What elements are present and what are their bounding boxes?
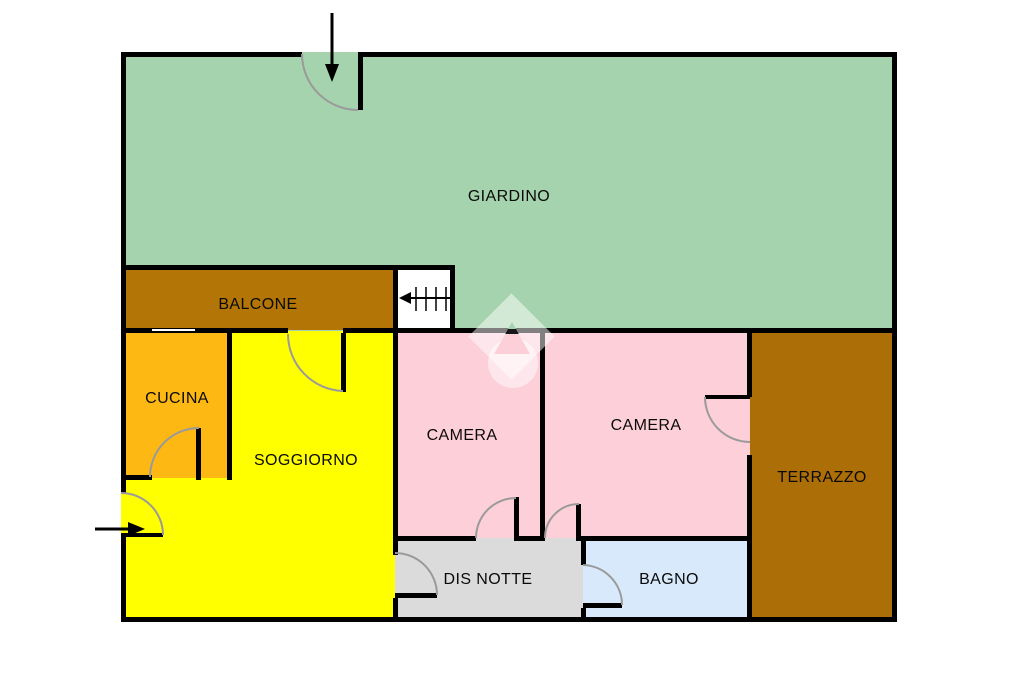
wall — [395, 536, 476, 541]
floor-plan: GIARDINO BALCONE CUCINA SOGGIORNO CAMERA… — [0, 0, 1024, 682]
room-label-balcone: BALCONE — [218, 296, 297, 314]
window-opening — [152, 329, 195, 331]
room-label-bagno: BAGNO — [639, 571, 699, 589]
wall — [358, 52, 897, 57]
wall — [747, 333, 752, 397]
door-leaf — [705, 395, 750, 399]
wall — [121, 617, 897, 622]
wall — [579, 536, 750, 541]
door-leaf — [196, 428, 201, 480]
wall — [747, 455, 752, 622]
wall — [393, 598, 398, 622]
room-label-camera-2: CAMERA — [611, 417, 682, 435]
wall — [393, 265, 398, 330]
wall — [121, 535, 126, 622]
wall — [121, 52, 302, 57]
wall — [450, 265, 455, 330]
wall — [227, 333, 232, 480]
door-leaf — [576, 504, 581, 541]
stairs-box — [396, 268, 452, 330]
room-label-camera-1: CAMERA — [427, 427, 498, 445]
door-leaf — [341, 333, 346, 392]
wall — [892, 52, 897, 622]
room-label-terrazzo: TERRAZZO — [777, 469, 866, 487]
room-label-soggiorno: SOGGIORNO — [254, 452, 358, 470]
wall — [581, 608, 586, 622]
door-leaf — [121, 533, 163, 537]
wall — [343, 328, 897, 333]
room-label-giardino: GIARDINO — [468, 188, 550, 206]
door-leaf — [514, 497, 519, 541]
door-leaf — [395, 593, 437, 598]
room-camera-2 — [542, 331, 750, 540]
door-leaf — [358, 52, 363, 110]
wall — [121, 328, 288, 333]
wall — [121, 265, 455, 270]
wall — [540, 333, 545, 541]
wall — [121, 52, 126, 493]
room-label-dis-notte: DIS NOTTE — [444, 571, 533, 589]
door-leaf — [583, 603, 622, 608]
wall — [581, 541, 586, 565]
wall — [393, 333, 398, 555]
room-label-cucina: CUCINA — [145, 390, 209, 408]
